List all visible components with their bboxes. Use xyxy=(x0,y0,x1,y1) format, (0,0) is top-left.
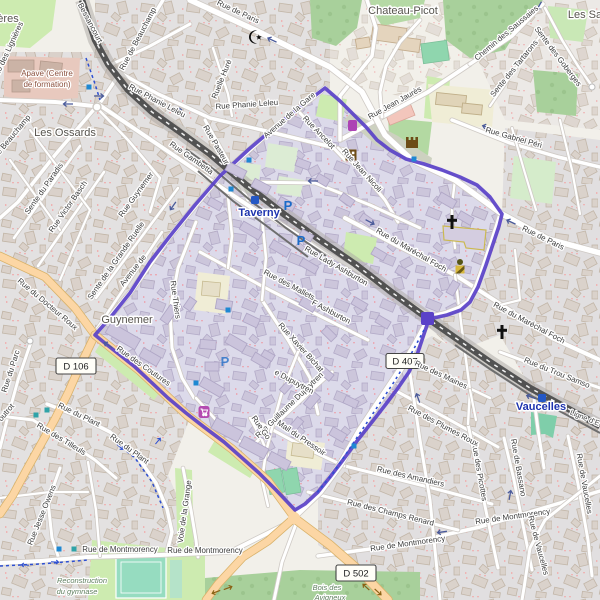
svg-text:Chateau-Picot: Chateau-Picot xyxy=(368,5,438,17)
svg-text:Taverny: Taverny xyxy=(238,207,280,219)
svg-text:Avigneux: Avigneux xyxy=(314,593,346,600)
svg-text:Vaucelles: Vaucelles xyxy=(516,401,566,413)
svg-text:Guynemer: Guynemer xyxy=(101,314,153,326)
svg-text:du gymnase: du gymnase xyxy=(57,587,98,596)
svg-text:P: P xyxy=(297,233,306,248)
svg-text:ères: ères xyxy=(0,13,19,25)
svg-text:de formation): de formation) xyxy=(23,80,70,89)
svg-text:D 502: D 502 xyxy=(343,568,368,579)
svg-text:P: P xyxy=(221,354,230,369)
svg-text:Les Sa: Les Sa xyxy=(568,9,600,21)
svg-text:D 106: D 106 xyxy=(63,361,88,372)
svg-text:P: P xyxy=(284,198,293,213)
svg-text:Rue de Montmorency: Rue de Montmorency xyxy=(82,545,157,554)
svg-text:Apave (Centre: Apave (Centre xyxy=(21,69,73,78)
svg-text:Rue de Montmorency: Rue de Montmorency xyxy=(167,546,242,555)
svg-text:Les Ossards: Les Ossards xyxy=(34,127,96,139)
svg-text:Reconstruction: Reconstruction xyxy=(57,576,107,585)
svg-text:Bois des: Bois des xyxy=(313,583,342,592)
